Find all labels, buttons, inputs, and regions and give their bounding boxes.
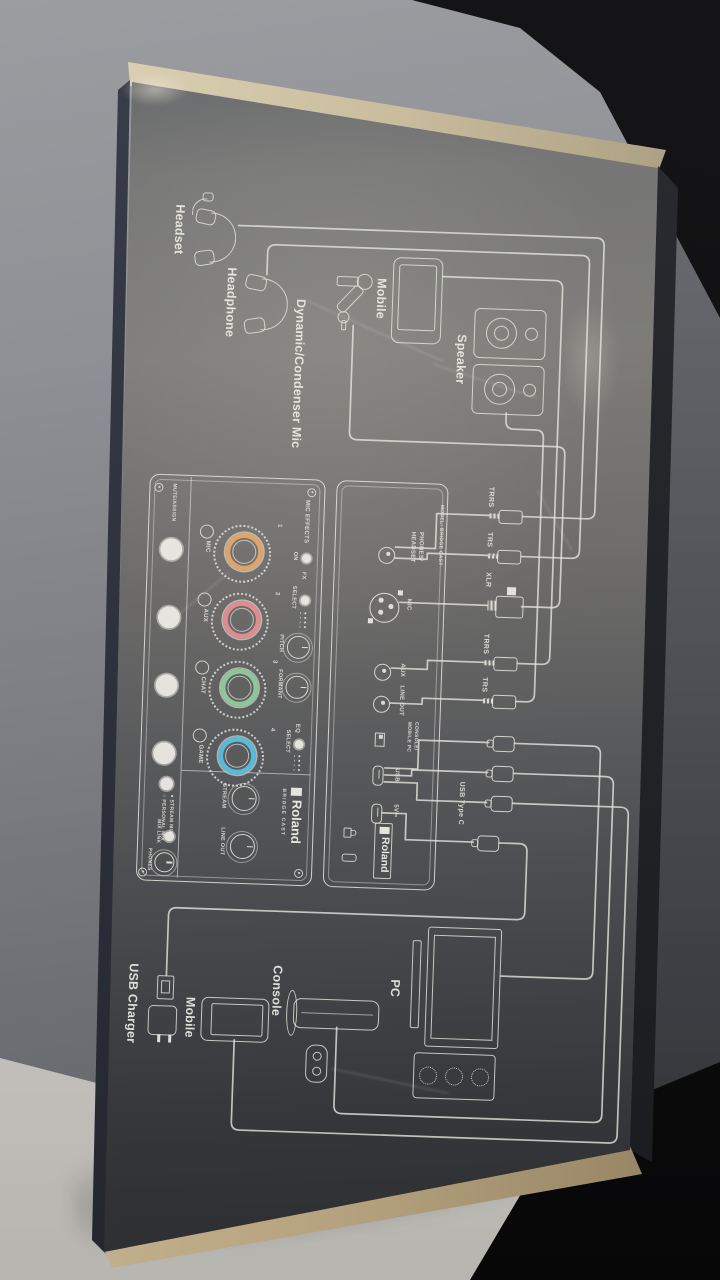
formant-label: FORMANT — [276, 669, 283, 699]
xlr-plug-label: XLR — [484, 567, 492, 587]
usb-port-label: USB — [393, 768, 399, 782]
xlr-marker — [507, 587, 516, 595]
chat-channel-label: CHAT — [199, 676, 206, 694]
channel-number: 4 — [269, 728, 275, 732]
mic-port-label: MIC — [405, 599, 411, 611]
eq-label: EQ — [294, 724, 300, 733]
headset-mic-capsule — [202, 192, 213, 201]
charger-prong — [169, 1035, 172, 1043]
usb-c-plug-tip — [487, 739, 494, 747]
switch-label: MOBILE PC — [405, 722, 412, 753]
usb-a-plug-inner — [161, 980, 170, 993]
mic-channel-label: MIC — [204, 540, 210, 552]
xlr-plug-icon — [495, 596, 524, 619]
pc-monitor-screen — [430, 935, 496, 1041]
trrs-plug-icon — [493, 657, 517, 672]
switch-label: CONSOLE/ — [412, 722, 419, 751]
roland-rear-logo: Roland — [378, 837, 391, 873]
stream-knob — [231, 786, 257, 812]
fx-select-label: SELECT — [290, 586, 297, 610]
roland-logo-mark — [291, 788, 302, 796]
xlr-pin — [379, 610, 384, 615]
mix-link-label: MIX LINK — [155, 819, 162, 844]
channel-number: 2 — [274, 592, 280, 596]
channel-number: 1 — [276, 524, 282, 528]
pc-label: PC — [388, 979, 403, 997]
usb-c-plug-tip — [471, 839, 478, 847]
xlr-flange — [398, 590, 403, 595]
scuff-mark — [120, 72, 190, 106]
line-out-knob-label: LINE OUT — [219, 827, 226, 855]
mobile-host-label: Mobile — [182, 982, 198, 1052]
trrs-plug-icon — [498, 510, 522, 525]
xlr-flange — [368, 618, 373, 623]
game-channel-label: GAME — [197, 744, 204, 763]
roland-panel-logo: Roland — [288, 800, 305, 845]
xlr-plug-tip — [487, 600, 496, 610]
trs-plug-tip — [487, 553, 498, 558]
box-diagram-artwork: Speaker Mobile Dynamic/Condenser Mic Hea… — [75, 117, 656, 1175]
power-port-label: 5V⎓ — [391, 804, 398, 817]
trrs-plug-tip — [489, 513, 500, 518]
console-label: Console — [269, 965, 285, 1016]
headphone-label: Headphone — [222, 259, 239, 345]
usb-c-plug-tip — [486, 769, 493, 777]
aux-port-label: AUX — [399, 663, 405, 677]
scuff-mark — [560, 300, 620, 420]
mic-clip-screw — [341, 320, 346, 330]
phones-knob — [154, 852, 175, 873]
usb-c-plug-icon — [492, 736, 515, 753]
formant-knob — [285, 675, 309, 699]
pitch-knob — [287, 635, 311, 659]
roland-logo-mark — [379, 827, 389, 834]
usb-c-plug-icon — [477, 835, 500, 852]
phones-headset-label: HEADSET — [409, 532, 416, 563]
channel-number: 3 — [271, 660, 277, 664]
mode-switch — [375, 733, 385, 747]
photo-scene: Speaker Mobile Dynamic/Condenser Mic Hea… — [0, 0, 720, 1280]
mobile-screen — [397, 264, 437, 331]
trrs-plug-label: TRRS — [487, 479, 495, 507]
trs-plug-label: TRS — [480, 664, 488, 692]
trs-plug-label: TRS — [486, 519, 494, 547]
gamepad-icon — [305, 1044, 328, 1083]
fx-select-leds — [300, 611, 309, 630]
usb-c-plug-icon — [490, 796, 513, 813]
mobile-label: Mobile — [373, 256, 390, 340]
eq-select-label: SELECT — [284, 729, 291, 753]
headset-cup — [194, 249, 216, 267]
line-out-knob — [230, 834, 256, 860]
fx-on-label: ON — [292, 552, 298, 561]
xlr-pin — [389, 604, 394, 609]
charger-prong — [158, 1034, 161, 1042]
usb-c-plug-tip — [484, 799, 491, 807]
fx-label: FX — [300, 572, 306, 580]
line-out-port-label: LINE OUT — [398, 685, 405, 716]
headphone-cup — [243, 317, 266, 335]
pitch-label: PITCH — [278, 634, 285, 652]
aux-channel-label: AUX — [202, 608, 208, 622]
stream-label: STREAM — [220, 783, 227, 808]
trrs-plug-label: TRRS — [482, 626, 490, 654]
trs-plug-tip — [482, 698, 493, 703]
eq-select-leds — [294, 754, 303, 773]
headset-label: Headset — [171, 191, 188, 267]
usb-c-plug-icon — [491, 766, 514, 783]
usb-charger-icon — [147, 1005, 177, 1036]
power-port — [371, 803, 383, 823]
usb-port — [372, 766, 384, 786]
security-slot — [341, 853, 356, 862]
trs-plug-icon — [497, 550, 521, 565]
phones-headset-label: PHONES/ — [417, 532, 424, 561]
phones-label: PHONES — [146, 848, 153, 871]
mobile-host-screen — [210, 1003, 263, 1037]
xlr-pin — [379, 598, 384, 603]
trs-plug-icon — [492, 695, 516, 710]
